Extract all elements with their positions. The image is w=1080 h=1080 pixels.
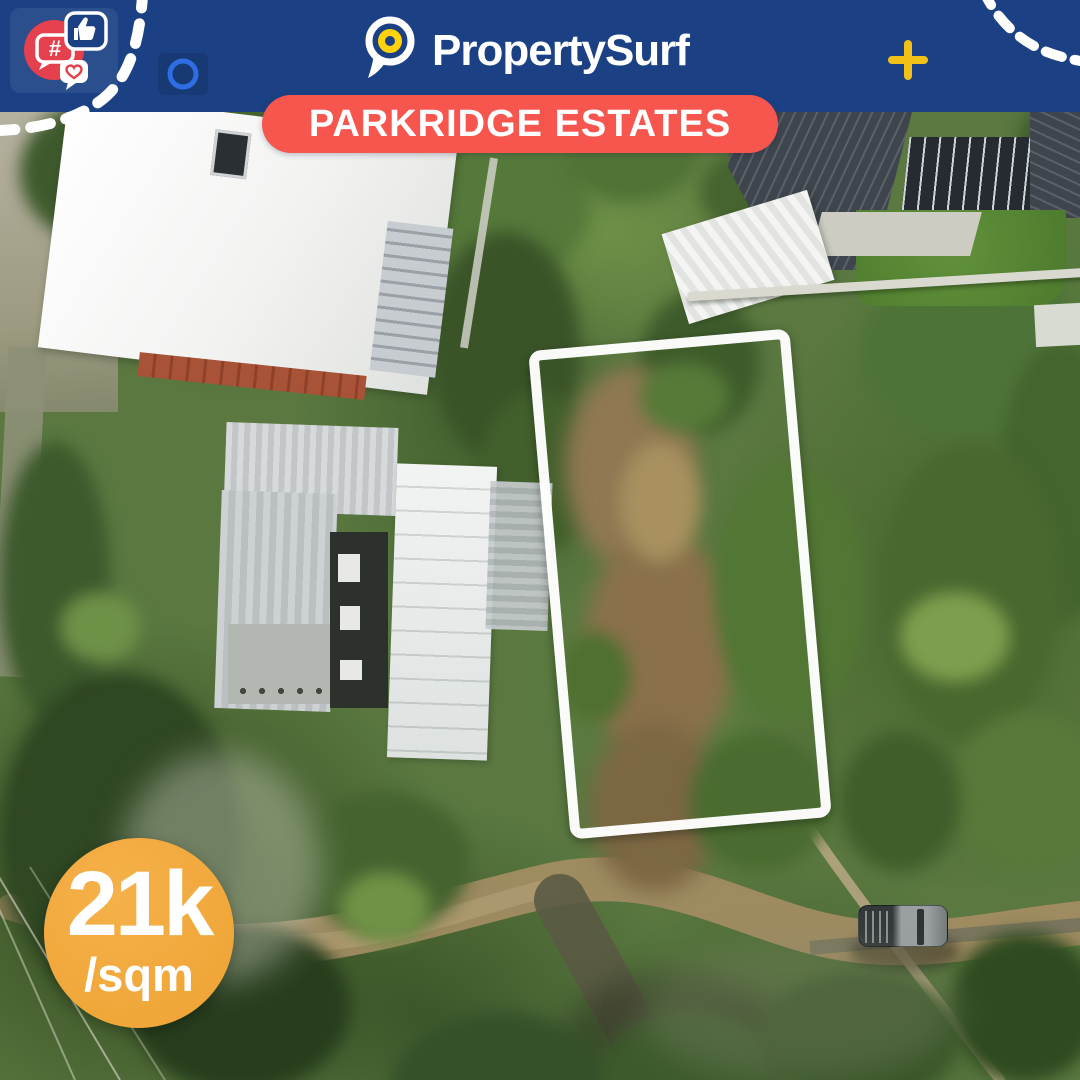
lot-boundary-outline: [528, 329, 832, 840]
brand-logo: PropertySurf: [362, 14, 689, 88]
plus-icon: [888, 40, 928, 80]
terrace-pots: [234, 682, 330, 700]
concrete-pad: [810, 212, 982, 256]
glass-atrium-roof: [901, 137, 1040, 221]
price-badge: 21k /sqm: [44, 838, 234, 1028]
ring-glyph: [158, 53, 208, 95]
parked-car: [858, 905, 948, 947]
tree-canopy: [900, 592, 1010, 682]
terrace: [228, 624, 334, 704]
tree-canopy: [60, 592, 140, 662]
tree-canopy: [340, 872, 430, 942]
car-roof-rack: [865, 911, 891, 943]
svg-text:#: #: [49, 36, 61, 61]
tree-canopy: [950, 932, 1080, 1080]
property-social-post: # PropertySurf: [0, 0, 1080, 1080]
white-garage-roof: [662, 190, 835, 324]
ring-icon: [158, 53, 208, 95]
banner-label: PARKRIDGE ESTATES: [309, 103, 731, 146]
social-engagement-icon: #: [10, 8, 118, 93]
road-haze: [640, 942, 960, 1080]
price-value: 21k: [67, 864, 212, 945]
social-engagement-glyph: #: [10, 8, 118, 93]
tree-canopy: [840, 732, 960, 872]
white-building: [38, 112, 458, 395]
brand-name: PropertySurf: [432, 26, 689, 76]
courtyard: [330, 532, 388, 708]
building-window: [210, 129, 251, 179]
tree-canopy: [880, 442, 1060, 742]
brand-pin-icon: [362, 14, 416, 88]
dark-roof-right-wing: [1030, 112, 1080, 218]
price-unit: /sqm: [84, 947, 194, 1002]
small-structure: [1034, 303, 1080, 347]
estate-banner: PARKRIDGE ESTATES: [262, 95, 778, 153]
white-roof-wing: [387, 463, 497, 760]
plus-glyph: [888, 40, 928, 80]
car-windshield: [917, 909, 924, 945]
